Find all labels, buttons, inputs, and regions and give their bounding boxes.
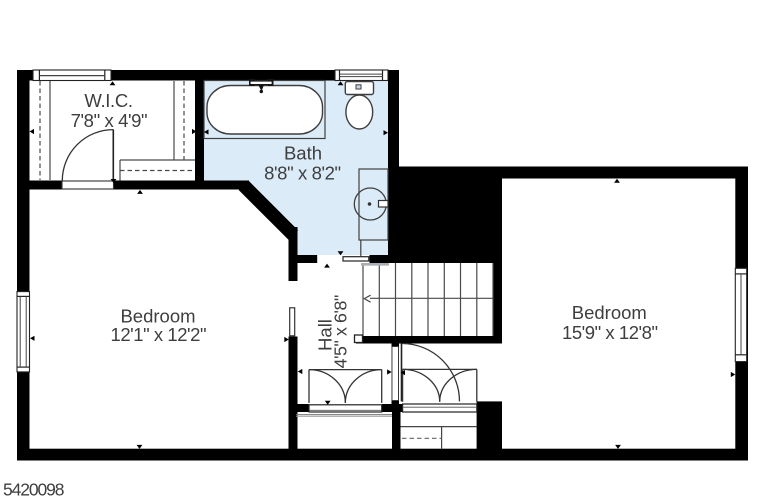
svg-text:15'9" x 12'8": 15'9" x 12'8" bbox=[562, 322, 658, 343]
svg-text:W.I.C.: W.I.C. bbox=[84, 90, 132, 111]
svg-text:Bedroom: Bedroom bbox=[572, 302, 647, 323]
svg-text:4'5" x 6'8": 4'5" x 6'8" bbox=[331, 295, 351, 368]
svg-text:8'8" x 8'2": 8'8" x 8'2" bbox=[264, 163, 340, 184]
svg-text:12'1" x 12'2": 12'1" x 12'2" bbox=[110, 324, 206, 345]
svg-text:Bedroom: Bedroom bbox=[120, 305, 195, 326]
svg-text:5420098: 5420098 bbox=[3, 479, 64, 499]
svg-text:7'8" x 4'9": 7'8" x 4'9" bbox=[71, 110, 147, 131]
svg-text:Bath: Bath bbox=[284, 143, 322, 164]
